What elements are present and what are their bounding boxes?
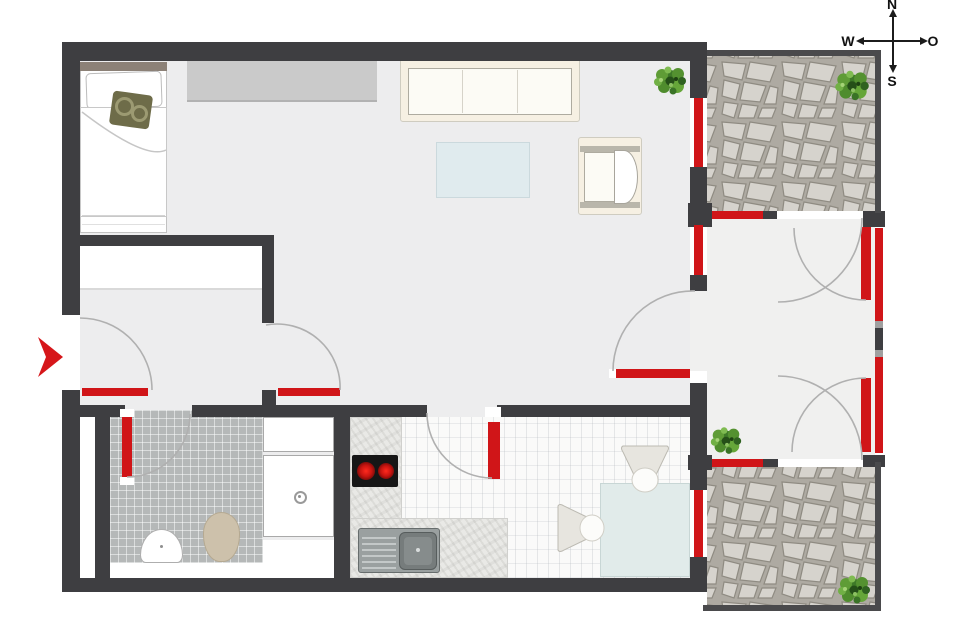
floor-plan: N S W O [0,0,960,642]
sofa-seat [408,68,572,115]
bathroom-cabinet [263,417,334,452]
kitchen-door-leaf [488,422,500,479]
wall-south-a [62,405,125,417]
wall-bath-kitchen [334,417,350,578]
coffee-table [436,142,530,198]
door-opening [690,291,707,371]
wall-south-c [497,405,693,417]
toilet [203,512,240,562]
terrace-south-wall-right [875,462,881,611]
living-loggia-door-leaf [616,369,690,378]
wall-right [690,383,707,455]
terrace-south [707,467,875,605]
wall-south-b [192,405,427,417]
entry-door-leaf [82,388,148,396]
service-shaft [80,415,95,578]
glazing-connector [875,321,883,328]
wall-right [690,42,707,98]
sink-faucet-dot [160,545,163,548]
wall-right-stub [690,275,707,291]
terrace-north-wall-top [707,50,881,56]
wall-right [690,557,707,592]
sofa-cushion-divider [517,70,518,113]
wall-left-upper [62,42,80,315]
living-loggia-window [694,225,703,275]
bathroom-tile-floor [110,410,263,563]
wall-loggia-post [763,459,778,467]
door-niche [485,407,501,417]
wall-bottom [62,578,707,592]
wall-bedroom [62,235,274,246]
dining-table [600,483,690,577]
loggia-east-glazing-top [875,228,883,321]
sofa-cushion-divider [462,70,463,113]
bed-foot-line [82,224,165,225]
wall-right [690,167,707,203]
door-niche [690,371,707,383]
sideboard [187,59,377,102]
wall-junction [688,203,712,227]
door-niche [609,369,616,378]
door-niche [120,477,134,485]
wall-shaft [95,415,110,578]
hall-door-leaf [278,388,340,396]
loggia-east-glazing-bottom [875,357,883,453]
wall-loggia-corner-ne [863,211,885,227]
wall-left-lower [62,390,80,592]
bed-headboard [80,62,167,71]
sink-knob [416,548,420,552]
burner-icon [378,463,394,479]
bathroom-door-leaf [122,417,132,477]
hall-closet [80,243,263,290]
loggia-east-door-top-leaf [861,227,871,300]
shower-drain-dot [298,495,301,498]
wall-junction [688,455,712,470]
living-terrace1-window [694,98,703,167]
sink-drainboard [362,533,396,569]
wall-hall [262,235,274,323]
dining-terrace2-window [694,490,703,557]
wall-right [690,470,707,490]
armchair-armrest [580,202,640,208]
door-niche [120,409,134,417]
glazing-connector [875,350,883,357]
wall-loggia-post [763,211,777,219]
loggia-terrace2-window [712,459,763,467]
bed-foot-line [82,215,165,216]
loggia-terrace1-window [712,211,763,219]
terrace-north [707,56,875,212]
wall-loggia-corner-se [863,455,885,467]
bath-mat [110,563,263,578]
wall-top [62,42,707,61]
wall-east-mullion [875,328,883,350]
terrace-south-wall-bottom [703,605,881,611]
cushion-pattern [131,105,148,122]
wall-hinge-post [262,390,276,405]
loggia-floor [705,219,875,459]
loggia-east-door-bottom-leaf [861,378,871,452]
terrace-north-wall-right [875,50,881,213]
bathroom-counter [263,540,334,578]
burner-icon [357,462,375,480]
